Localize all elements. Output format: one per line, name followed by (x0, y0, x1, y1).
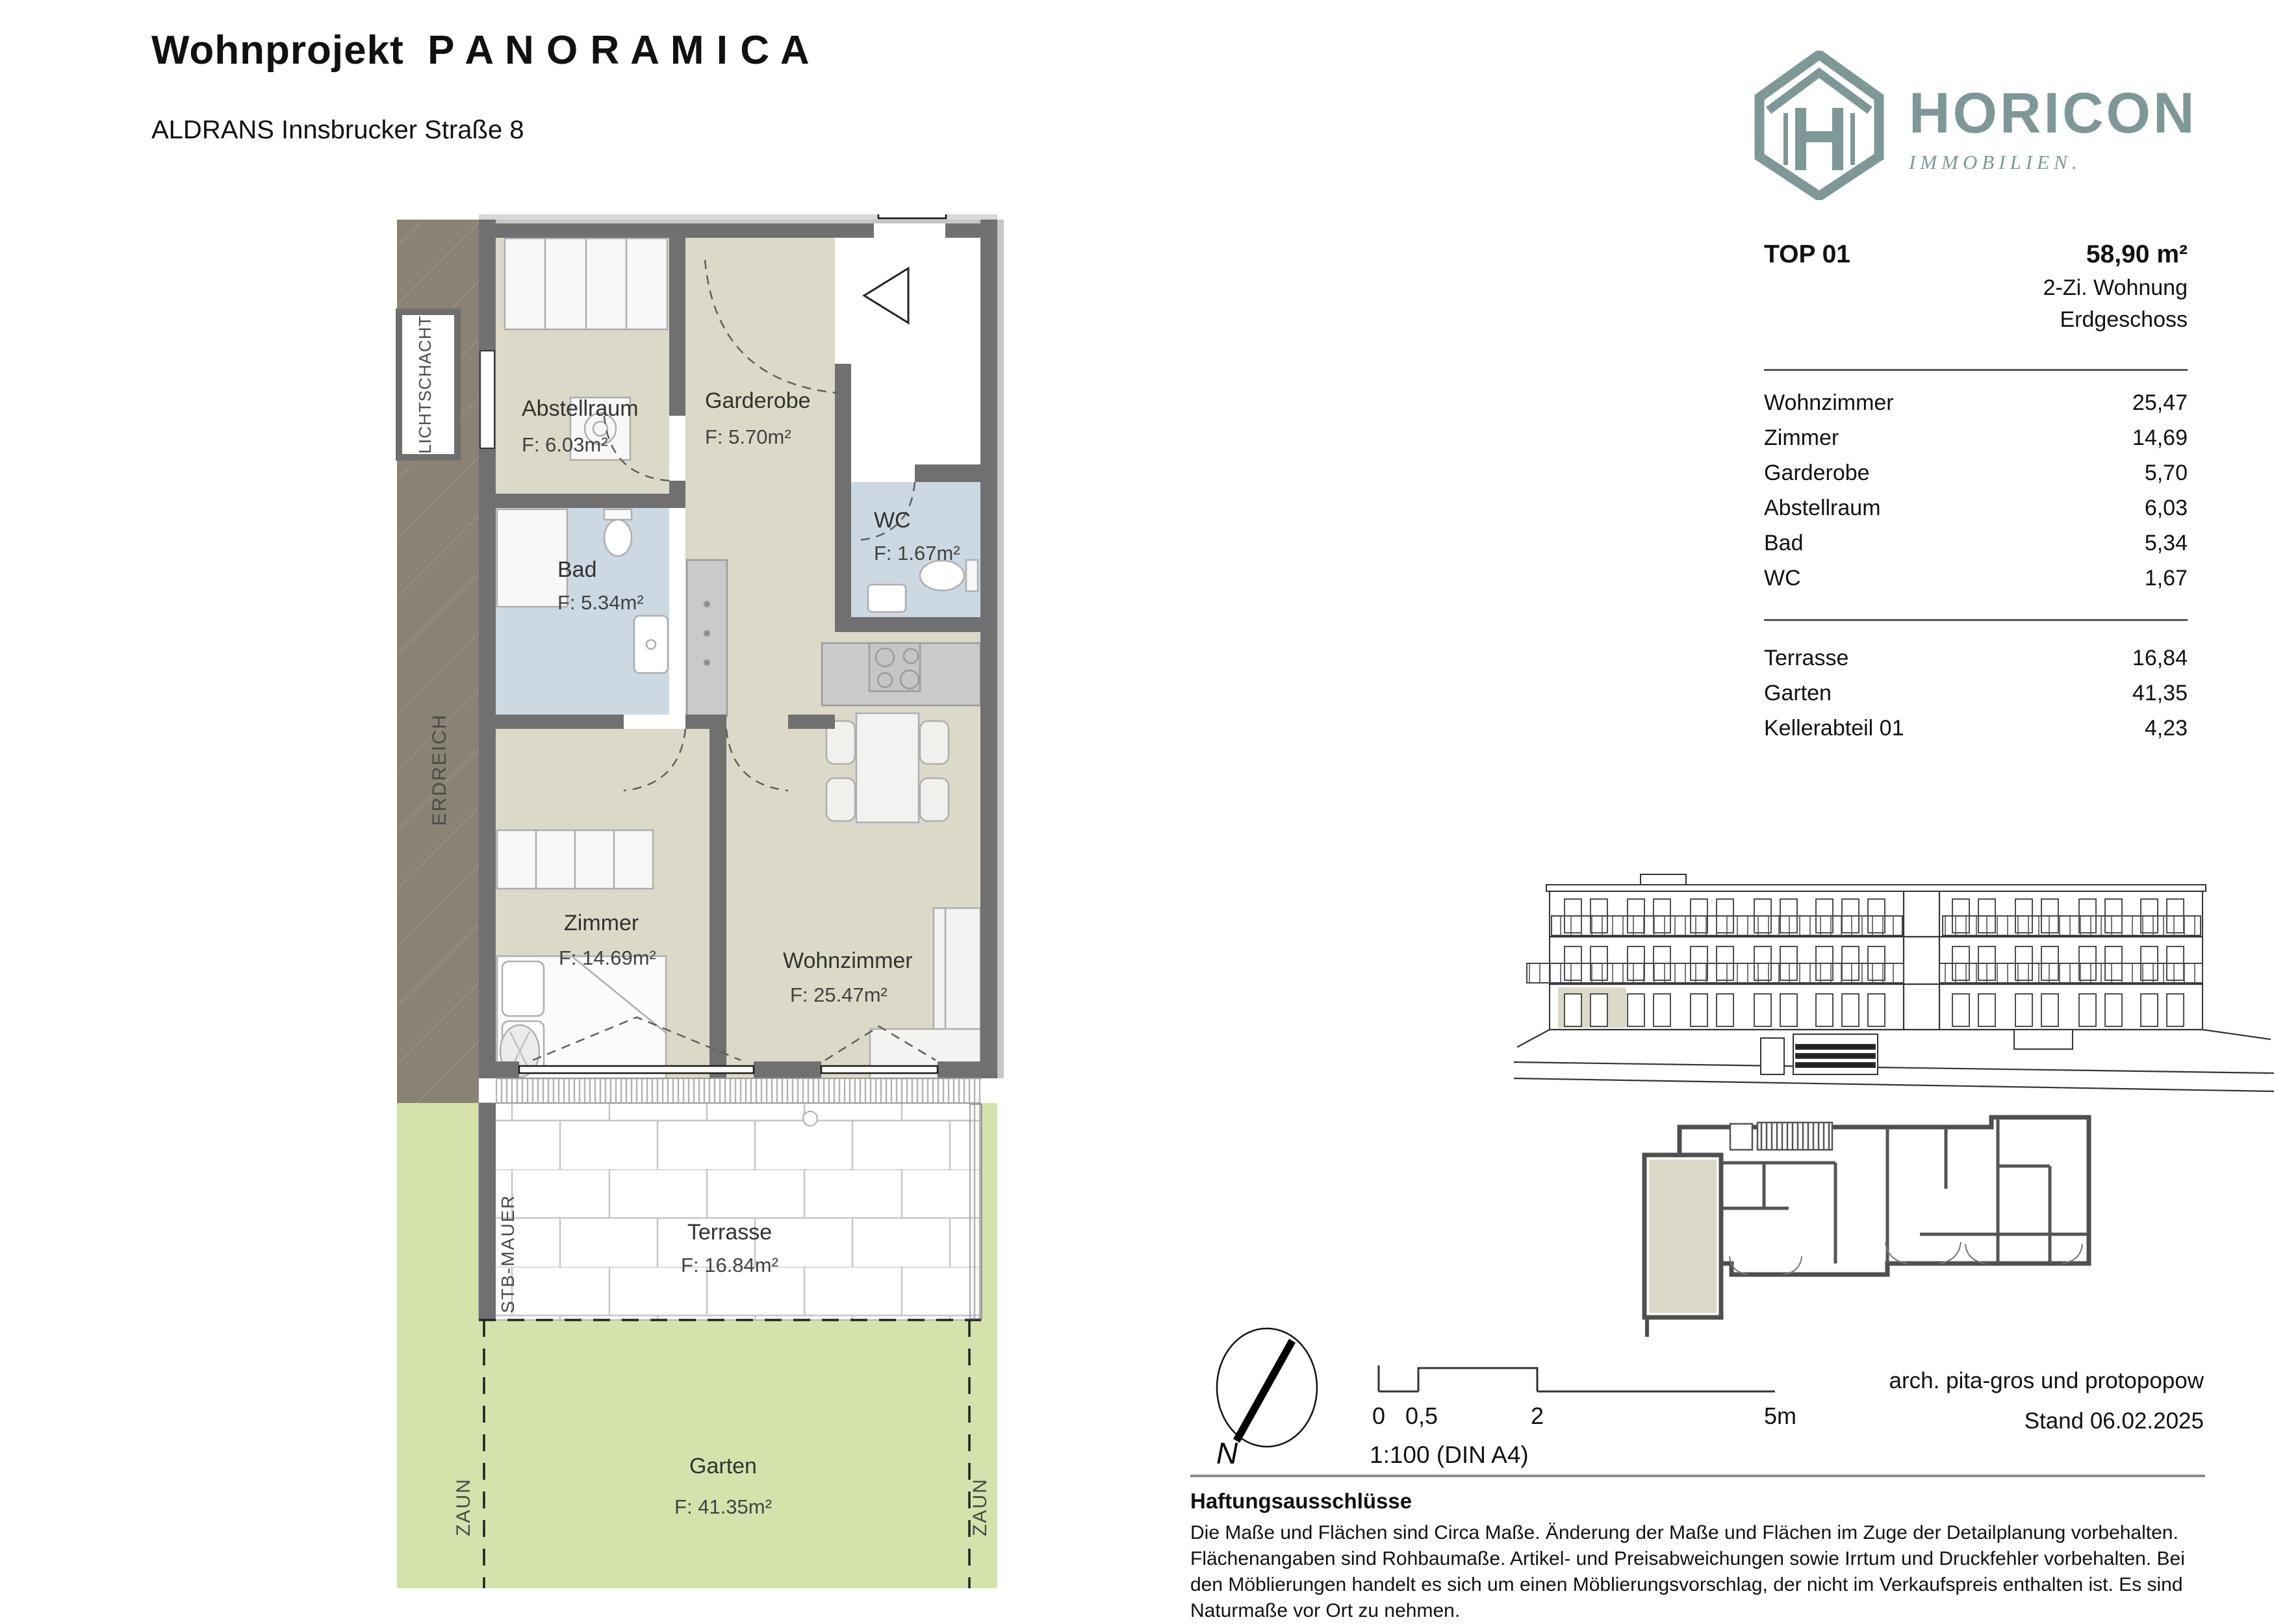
label-abstellraum: Abstellraum (522, 396, 639, 421)
area-row: Wohnzimmer25,47 (1764, 390, 2188, 425)
architect-name: arch. pita-gros und protopopow (1748, 1368, 2204, 1394)
panel-divider (1764, 619, 2188, 621)
shower (497, 509, 567, 607)
key-plan (1634, 1104, 2134, 1341)
unit-total-area: 58,90 m² (2086, 240, 2188, 269)
unit-floor: Erdgeschoss (1764, 307, 2188, 333)
disclaimer-title: Haftungsausschlüsse (1190, 1489, 2205, 1514)
kitchen-island (822, 643, 980, 705)
label-stb-mauer: STB-MAUER (498, 1195, 518, 1313)
wardrobe-zimmer (497, 830, 653, 889)
label-zaun-right: ZAUN (969, 1478, 991, 1536)
area-row: Bad5,34 (1764, 531, 2188, 566)
unit-number: TOP 01 (1764, 240, 1850, 269)
panel-divider (1764, 369, 2188, 371)
label-abstellraum-area: F: 6.03m² (522, 433, 608, 456)
label-bad-area: F: 5.34m² (557, 591, 644, 614)
label-terrasse: Terrasse (687, 1220, 772, 1245)
label-terrasse-area: F: 16.84m² (681, 1254, 778, 1276)
label-erdreich: ERDREICH (429, 714, 450, 826)
architect-block: arch. pita-gros und protopopow Stand 06.… (1748, 1368, 2204, 1434)
wardrobe-abstellraum (505, 238, 667, 329)
label-lichtschacht: LICHTSCHACHT (415, 316, 435, 454)
label-garderobe-area: F: 5.70m² (705, 425, 791, 448)
horicon-house-icon (1754, 51, 1884, 203)
terrace-railing (970, 1104, 982, 1319)
label-wohnzimmer-area: F: 25.47m² (790, 983, 888, 1006)
label-zaun-left: ZAUN (453, 1478, 474, 1536)
logo-wordmark: HORICON (1909, 84, 2197, 142)
page-subtitle: ALDRANS Innsbrucker Straße 8 (151, 116, 524, 145)
unit-type: 2-Zi. Wohnung (1764, 275, 2188, 301)
label-wohnzimmer: Wohnzimmer (783, 948, 913, 973)
area-row: Terrasse16,84 (1764, 646, 2188, 681)
scale-tick-0: 0 (1372, 1402, 1385, 1429)
toilet-bad-icon (604, 509, 632, 556)
area-row: Abstellraum6,03 (1764, 496, 2188, 531)
ground-lines (1514, 1030, 2274, 1091)
sink-wc-icon (868, 585, 906, 612)
label-zimmer-area: F: 14.69m² (559, 946, 656, 969)
label-garten: Garten (689, 1454, 757, 1478)
label-bad: Bad (557, 557, 597, 582)
label-wc-area: F: 1.67m² (874, 542, 960, 565)
terrace-area (479, 1103, 981, 1320)
disclaimer-block: Haftungsausschlüsse Die Maße und Flächen… (1190, 1475, 2205, 1624)
horicon-logo: HORICON IMMOBILIEN. (1754, 51, 2197, 203)
area-row: Garten41,35 (1764, 681, 2188, 716)
label-zimmer: Zimmer (564, 911, 639, 935)
label-garten-area: F: 41.35m² (674, 1495, 772, 1518)
floorplan-sheet: { "header": { "title": "Wohnprojekt P A … (0, 0, 2274, 1608)
entry-door-leaf (878, 214, 946, 218)
scale-tick-2: 2 (1531, 1402, 1544, 1429)
plan-date: Stand 06.02.2025 (1748, 1408, 2204, 1434)
toilet-wc-icon (920, 560, 978, 591)
scale-note: 1:100 (DIN A4) (1370, 1441, 1529, 1468)
unit-info-panel: TOP 01 58,90 m² 2-Zi. Wohnung Erdgeschos… (1764, 240, 2188, 751)
floor-plan-drawing: Abstellraum F: 6.03m² Garderobe F: 5.70m… (390, 214, 1004, 1592)
label-garderobe: Garderobe (705, 388, 811, 413)
logo-tagline: IMMOBILIEN. (1909, 151, 2197, 174)
page-title: Wohnprojekt P A N O R A M I C A (151, 27, 810, 73)
area-row: Kellerabteil 014,23 (1764, 716, 2188, 751)
key-plan-highlight (1649, 1160, 1717, 1313)
kitchen-counter (687, 560, 727, 716)
building-elevation (1514, 870, 2274, 1098)
disclaimer-divider (1190, 1475, 2205, 1477)
stb-wall (479, 1103, 496, 1320)
area-row: Garderobe5,70 (1764, 461, 2188, 496)
compass-north-label: N (1216, 1436, 1238, 1470)
north-compass-icon: N (1202, 1322, 1338, 1478)
disclaimer-text: Die Maße und Flächen sind Circa Maße. Än… (1190, 1520, 2205, 1624)
sink-bad-icon (634, 616, 668, 673)
area-row: WC1,67 (1764, 566, 2188, 601)
area-row: Zimmer14,69 (1764, 425, 2188, 461)
scale-tick-05: 0,5 (1405, 1402, 1438, 1429)
label-wc: WC (874, 508, 911, 533)
key-plan-stairs (1730, 1123, 1832, 1150)
